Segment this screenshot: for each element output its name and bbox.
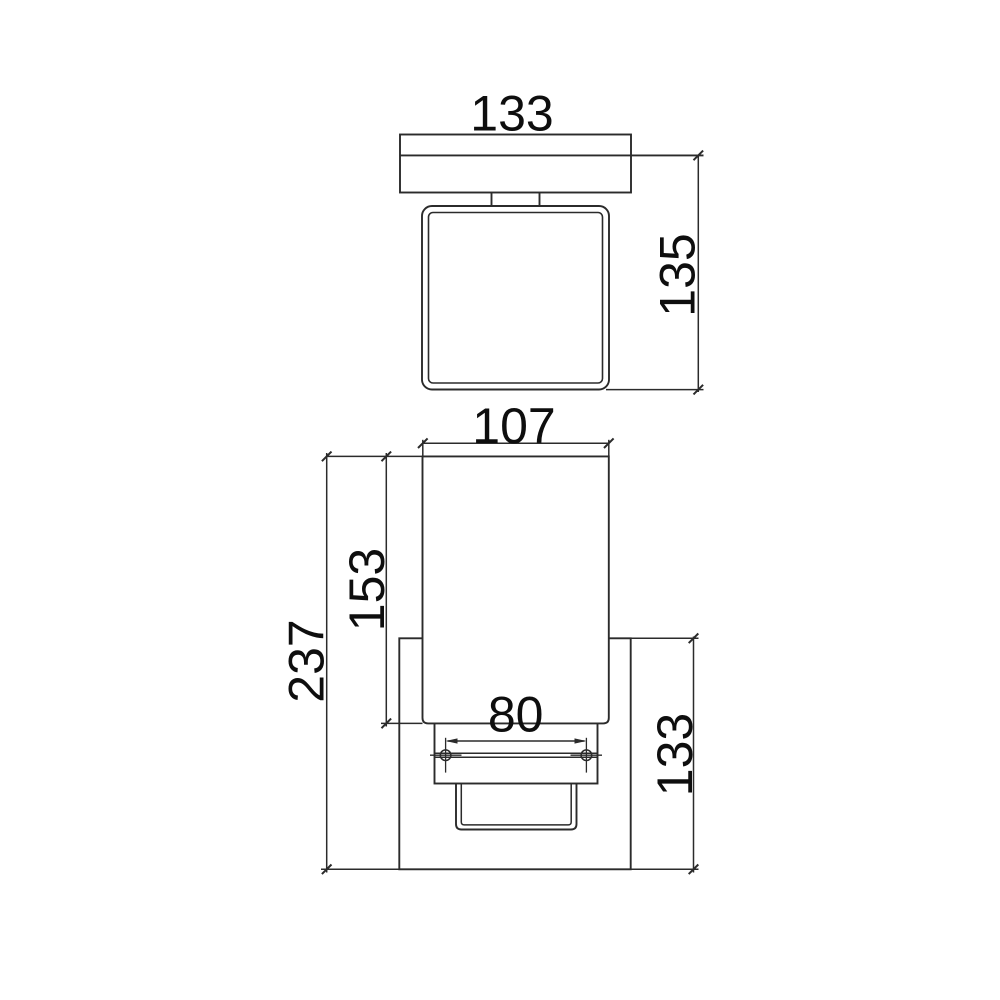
svg-text:153: 153 [339, 548, 395, 631]
svg-text:133: 133 [647, 713, 703, 796]
svg-text:107: 107 [472, 398, 555, 454]
svg-text:80: 80 [488, 687, 544, 743]
svg-text:237: 237 [279, 619, 335, 702]
svg-text:135: 135 [650, 233, 706, 316]
svg-text:133: 133 [470, 86, 553, 142]
